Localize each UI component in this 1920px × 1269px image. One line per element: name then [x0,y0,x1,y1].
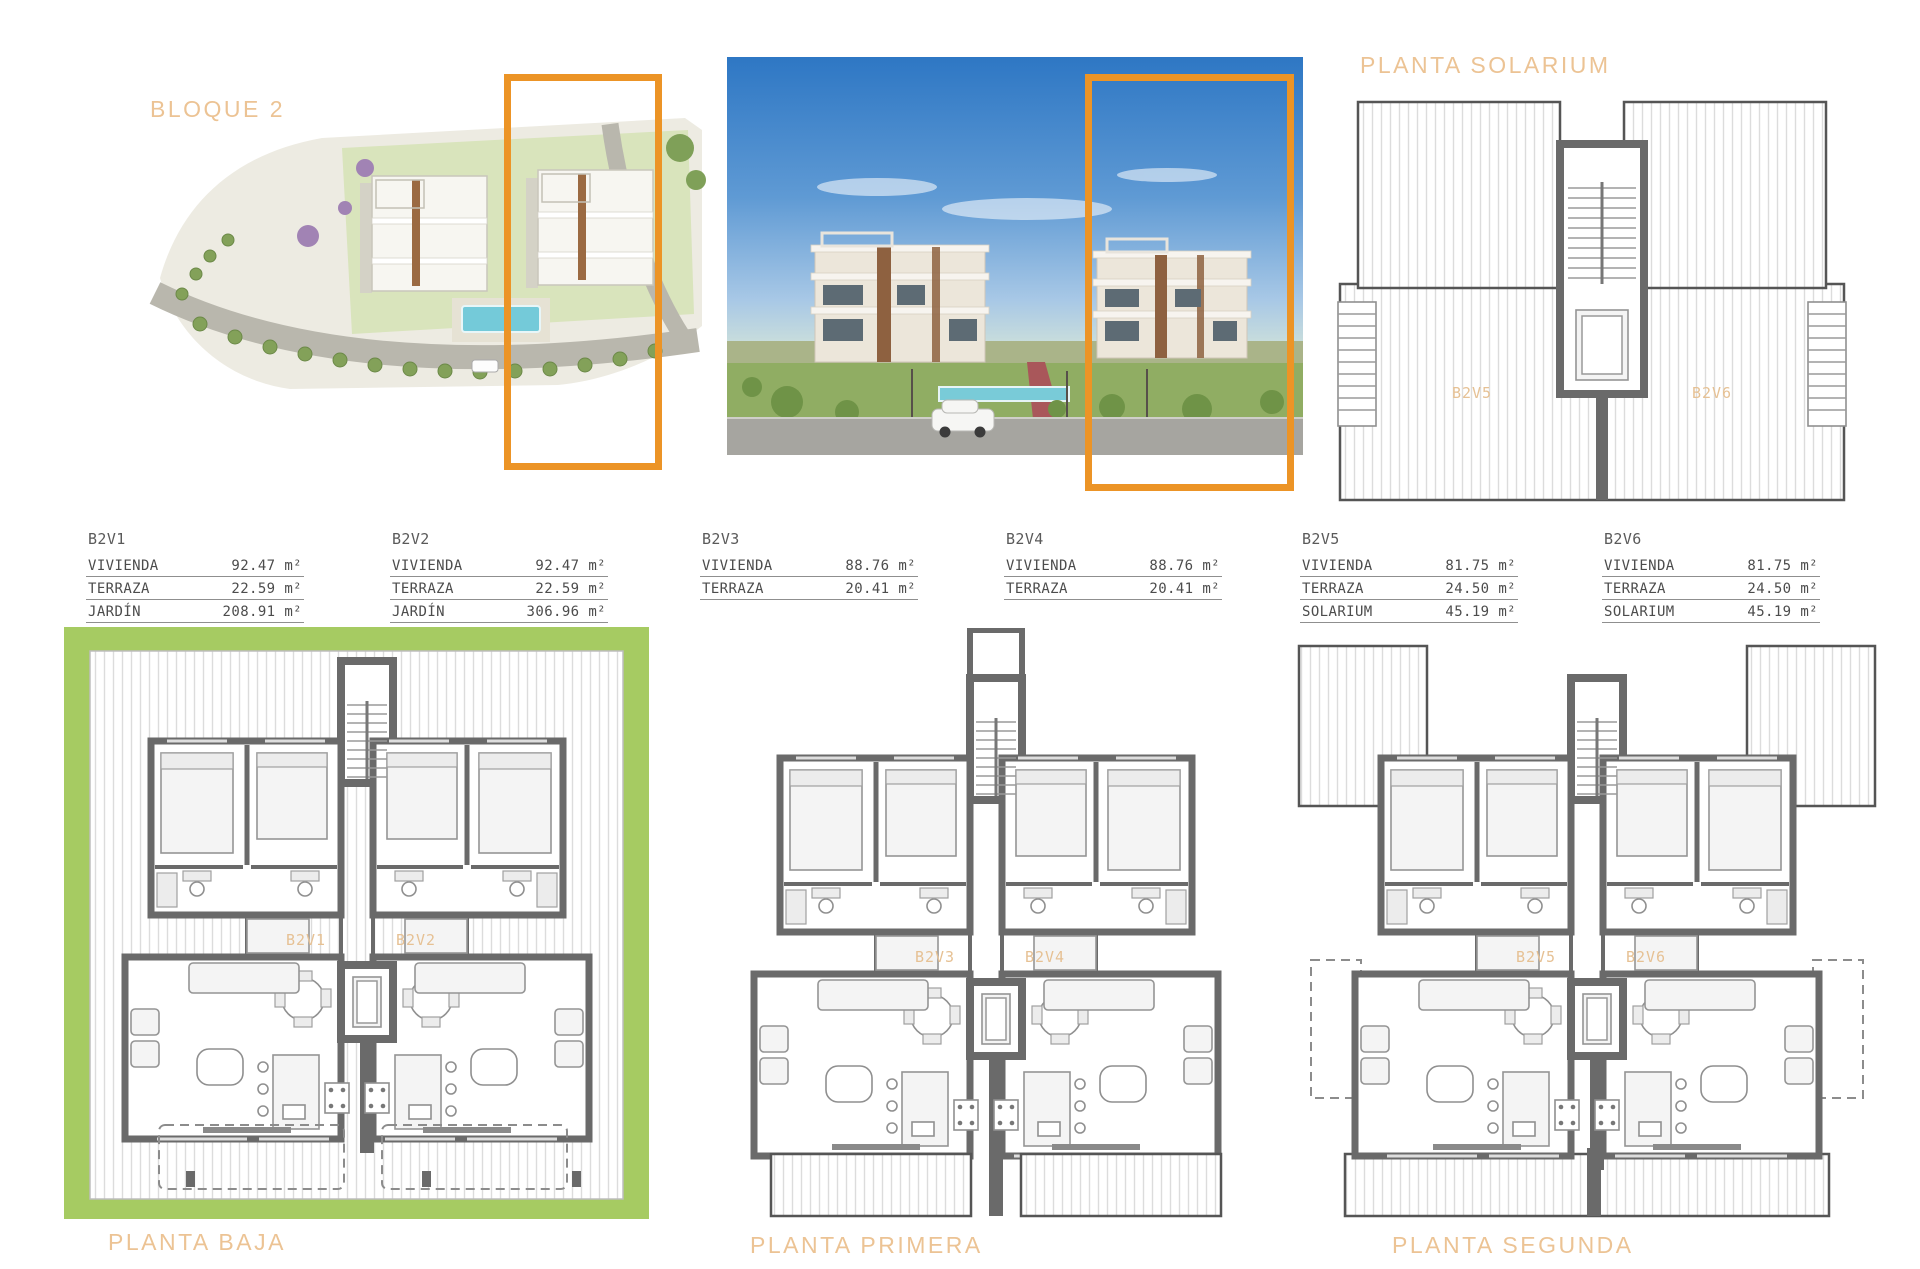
row-label: SOLARIUM [1302,604,1373,620]
plan-segunda: B2V5 B2V6 [1297,628,1877,1218]
fence-post [422,1171,431,1187]
roof-terrace-right [1624,102,1826,288]
block-title: BLOQUE 2 [150,96,285,123]
table-row: VIVIENDA88.76 m² [700,554,918,577]
side-stairs-right [1808,302,1846,426]
row-value: 208.91 m² [223,604,302,620]
party-wall [1587,1148,1601,1216]
plan-primera: B2V3 B2V4 [716,628,1256,1218]
row-label: SOLARIUM [1604,604,1675,620]
roof-terrace-left [1358,102,1560,288]
table-row: SOLARIUM45.19 m² [1602,600,1820,623]
pool [939,387,1069,401]
row-label: TERRAZA [702,581,764,597]
unit-table-b2v2: B2V2 VIVIENDA92.47 m² TERRAZA22.59 m² JA… [390,530,608,623]
row-label: VIVIENDA [1302,558,1373,574]
highlight-box-aerial [504,74,662,470]
row-label: VIVIENDA [392,558,463,574]
table-row: JARDÍN306.96 m² [390,600,608,623]
unit-label: B2V3 [915,948,955,966]
table-row: VIVIENDA81.75 m² [1300,554,1518,577]
row-value: 20.41 m² [1149,581,1220,597]
unit-label: B2V2 [396,931,436,949]
unit-id: B2V2 [390,530,608,554]
row-label: VIVIENDA [702,558,773,574]
row-label: TERRAZA [1302,581,1364,597]
row-label: TERRAZA [1006,581,1068,597]
highlight-box-street [1085,74,1294,491]
unit-table-b2v6: B2V6 VIVIENDA81.75 m² TERRAZA24.50 m² SO… [1602,530,1820,623]
row-label: VIVIENDA [1006,558,1077,574]
unit-label: B2V5 [1516,948,1556,966]
unit-label: B2V4 [1025,948,1065,966]
building-shadow [360,183,372,293]
row-value: 22.59 m² [535,581,606,597]
primera-title: PLANTA PRIMERA [750,1232,983,1259]
building-left [811,233,989,362]
side-stairs-left [1338,302,1376,426]
row-value: 92.47 m² [535,558,606,574]
unit-table-b2v5: B2V5 VIVIENDA81.75 m² TERRAZA24.50 m² SO… [1300,530,1518,623]
table-row: TERRAZA22.59 m² [390,577,608,600]
table-row: TERRAZA24.50 m² [1602,577,1820,600]
row-label: TERRAZA [1604,581,1666,597]
unit-table-b2v3: B2V3 VIVIENDA88.76 m² TERRAZA20.41 m² [700,530,918,600]
party-wall [1596,394,1608,500]
row-label: JARDÍN [88,604,141,620]
plan-baja: B2V1 B2V2 [64,627,649,1219]
table-row: TERRAZA20.41 m² [1004,577,1222,600]
row-value: 306.96 m² [527,604,606,620]
car [472,360,498,372]
row-value: 88.76 m² [845,558,916,574]
unit-id: B2V3 [700,530,918,554]
row-value: 22.59 m² [231,581,302,597]
row-label: VIVIENDA [1604,558,1675,574]
fence-post [572,1171,581,1187]
row-value: 92.47 m² [231,558,302,574]
row-value: 81.75 m² [1747,558,1818,574]
row-value: 20.41 m² [845,581,916,597]
row-label: JARDÍN [392,604,445,620]
unit-table-b2v4: B2V4 VIVIENDA88.76 m² TERRAZA20.41 m² [1004,530,1222,600]
unit-id: B2V6 [1602,530,1820,554]
row-label: TERRAZA [88,581,150,597]
plan-solarium: B2V5 B2V6 [1332,96,1852,506]
unit-table-b2v1: B2V1 VIVIENDA92.47 m² TERRAZA22.59 m² JA… [86,530,304,623]
unit-label: B2V1 [286,931,326,949]
unit-label: B2V6 [1626,948,1666,966]
row-label: TERRAZA [392,581,454,597]
table-row: VIVIENDA92.47 m² [390,554,608,577]
fence-post [186,1171,195,1187]
unit-id: B2V4 [1004,530,1222,554]
entry-vestibule [970,630,1022,678]
row-label: VIVIENDA [88,558,159,574]
table-row: VIVIENDA81.75 m² [1602,554,1820,577]
unit-id: B2V5 [1300,530,1518,554]
segunda-title: PLANTA SEGUNDA [1392,1232,1634,1259]
table-row: VIVIENDA92.47 m² [86,554,304,577]
row-value: 24.50 m² [1747,581,1818,597]
row-value: 81.75 m² [1445,558,1516,574]
unit-label: B2V6 [1692,384,1732,402]
terrace-right [1021,1154,1221,1216]
party-wall [989,1148,1003,1216]
table-row: TERRAZA20.41 m² [700,577,918,600]
table-row: JARDÍN208.91 m² [86,600,304,623]
baja-title: PLANTA BAJA [108,1229,286,1256]
terrace-left [771,1154,971,1216]
table-row: TERRAZA22.59 m² [86,577,304,600]
brochure-sheet: BLOQUE 2 [0,0,1920,1269]
row-value: 45.19 m² [1747,604,1818,620]
table-row: SOLARIUM45.19 m² [1300,600,1518,623]
solarium-title: PLANTA SOLARIUM [1360,52,1611,79]
building-cluster-left [372,176,487,291]
row-value: 45.19 m² [1445,604,1516,620]
unit-id: B2V1 [86,530,304,554]
row-value: 88.76 m² [1149,558,1220,574]
unit-label: B2V5 [1452,384,1492,402]
table-row: VIVIENDA88.76 m² [1004,554,1222,577]
table-row: TERRAZA24.50 m² [1300,577,1518,600]
row-value: 24.50 m² [1445,581,1516,597]
stair-core [1560,144,1644,394]
